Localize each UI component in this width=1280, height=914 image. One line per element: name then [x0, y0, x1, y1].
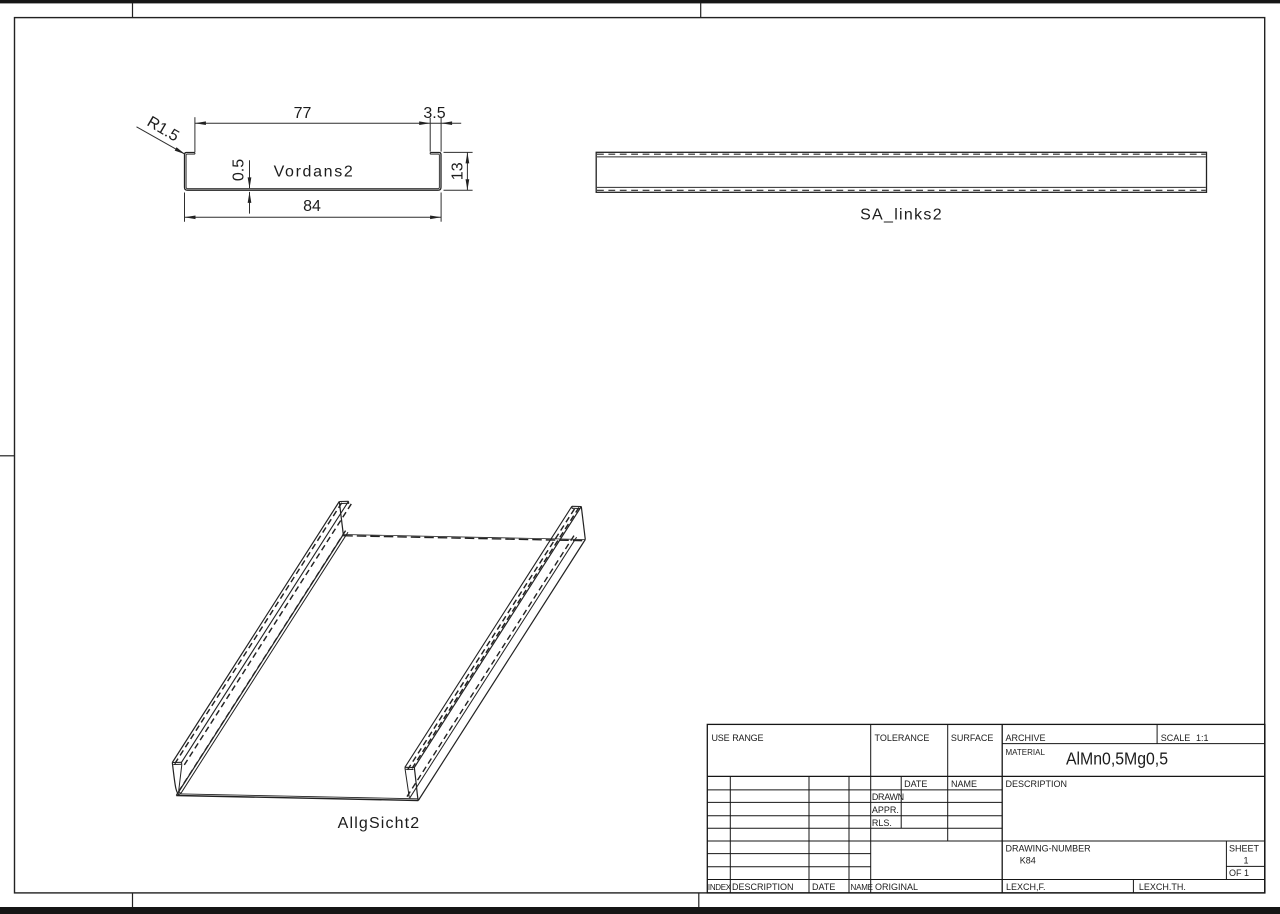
svg-text:13: 13: [449, 162, 466, 180]
svg-text:84: 84: [303, 198, 321, 215]
svg-text:1: 1: [1244, 856, 1249, 866]
svg-text:DRAWN: DRAWN: [872, 792, 904, 802]
svg-text:ARCHIVE: ARCHIVE: [1006, 733, 1046, 743]
svg-text:Vordans2: Vordans2: [274, 164, 355, 181]
svg-text:LEXCH.TH.: LEXCH.TH.: [1139, 882, 1186, 892]
svg-text:INDEX: INDEX: [708, 883, 732, 892]
svg-text:NAME: NAME: [951, 779, 977, 789]
svg-text:DESCRIPTION: DESCRIPTION: [732, 882, 794, 892]
svg-text:SCALE: SCALE: [1161, 733, 1191, 743]
svg-text:K84: K84: [1020, 855, 1036, 865]
svg-text:APPR.: APPR.: [872, 805, 899, 815]
svg-text:LEXCH,F.: LEXCH,F.: [1006, 882, 1046, 892]
svg-text:SA_links2: SA_links2: [860, 207, 943, 224]
svg-text:1:1: 1:1: [1196, 733, 1209, 743]
svg-text:NAME: NAME: [851, 883, 873, 892]
svg-text:77: 77: [294, 105, 312, 122]
svg-text:3.5: 3.5: [423, 105, 445, 122]
svg-text:RLS.: RLS.: [872, 818, 892, 828]
svg-text:DRAWING-NUMBER: DRAWING-NUMBER: [1006, 843, 1092, 853]
svg-text:TOLERANCE: TOLERANCE: [875, 733, 930, 743]
svg-text:SURFACE: SURFACE: [951, 733, 994, 743]
svg-text:MATERIAL: MATERIAL: [1006, 748, 1046, 757]
svg-text:DESCRIPTION: DESCRIPTION: [1006, 779, 1068, 789]
svg-text:USE RANGE: USE RANGE: [712, 733, 764, 743]
svg-text:AlMn0,5Mg0,5: AlMn0,5Mg0,5: [1066, 749, 1168, 769]
svg-text:DATE: DATE: [904, 779, 927, 789]
svg-text:ORIGINAL: ORIGINAL: [875, 882, 918, 892]
svg-text:AllgSicht2: AllgSicht2: [338, 815, 421, 832]
svg-text:SHEET: SHEET: [1229, 843, 1260, 853]
svg-text:DATE: DATE: [812, 882, 835, 892]
svg-text:OF 1: OF 1: [1229, 868, 1249, 878]
svg-text:0.5: 0.5: [231, 159, 248, 181]
